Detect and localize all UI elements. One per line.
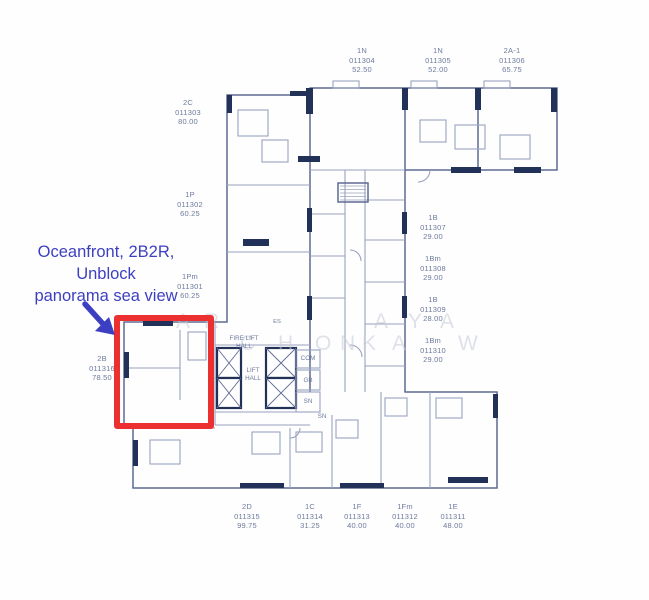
unit-id: 1N: [403, 46, 473, 56]
unit-area: 99.75: [212, 521, 282, 531]
unit-label-1bm-011310: 1Bm 011310 29.00: [398, 336, 468, 365]
unit-code: 011308: [398, 264, 468, 274]
floorplan-image: A R A Y A C H O N K A W 1N 011304 52.50 …: [0, 0, 649, 600]
unit-id: 2D: [212, 502, 282, 512]
unit-area: 52.00: [403, 65, 473, 75]
unit-code: 011303: [153, 108, 223, 118]
gb-label: GB: [298, 377, 318, 385]
fire-lift-shafts: [217, 348, 241, 408]
unit-area: 29.00: [398, 355, 468, 365]
unit-label-2c-011303: 2C 011303 80.00: [153, 98, 223, 127]
unit-code: 011305: [403, 56, 473, 66]
annotation-line2: Unblock: [16, 263, 196, 285]
unit-code: 011302: [155, 200, 225, 210]
unit-label-2a1-011306: 2A-1 011306 65.75: [477, 46, 547, 75]
unit-id: 2A-1: [477, 46, 547, 56]
com-label: COM: [296, 355, 320, 363]
unit-id: 1Bm: [398, 254, 468, 264]
lift-hall-line2: HALL: [240, 375, 266, 383]
fire-lift-hall-line1: FIRE LIFT: [222, 335, 266, 343]
unit-code: 011315: [212, 512, 282, 522]
unit-label-1bm-011308: 1Bm 011308 29.00: [398, 254, 468, 283]
unit-id: 1P: [155, 190, 225, 200]
unit-code: 011304: [327, 56, 397, 66]
unit-area: 29.00: [398, 273, 468, 283]
unit-label-1n-011305: 1N 011305 52.00: [403, 46, 473, 75]
unit-code: 011311: [418, 512, 488, 522]
unit-id: 2C: [153, 98, 223, 108]
unit-id: 1Bm: [398, 336, 468, 346]
unit-id: 1B: [398, 295, 468, 305]
unit-area: 60.25: [155, 209, 225, 219]
unit-area: 48.00: [418, 521, 488, 531]
annotation-text: Oceanfront, 2B2R, Unblock panorama sea v…: [16, 241, 196, 307]
arrow-icon: [78, 300, 126, 348]
unit-id: 1N: [327, 46, 397, 56]
sn-label-2: SN: [312, 413, 332, 421]
unit-code: 011306: [477, 56, 547, 66]
unit-code: 011309: [398, 305, 468, 315]
fire-lift-hall-label: FIRE LIFT HALL: [222, 335, 266, 350]
unit-area: 28.00: [398, 314, 468, 324]
lift-hall-line1: LIFT: [240, 367, 266, 375]
unit-label-1b-011307: 1B 011307 29.00: [398, 213, 468, 242]
unit-area: 65.75: [477, 65, 547, 75]
fire-lift-hall-line2: HALL: [222, 343, 266, 351]
highlight-rectangle: [114, 315, 214, 429]
annotation-line1: Oceanfront, 2B2R,: [16, 241, 196, 263]
unit-code: 011307: [398, 223, 468, 233]
lift-hall-label: LIFT HALL: [240, 367, 266, 382]
unit-area: 29.00: [398, 232, 468, 242]
sn-label: SN: [298, 398, 318, 406]
unit-label-1e-011311: 1E 011311 48.00: [418, 502, 488, 531]
unit-id: 1E: [418, 502, 488, 512]
es-label: ES: [268, 319, 286, 327]
unit-code: 011310: [398, 346, 468, 356]
unit-area: 52.50: [327, 65, 397, 75]
unit-id: 1B: [398, 213, 468, 223]
unit-label-1p-011302: 1P 011302 60.25: [155, 190, 225, 219]
unit-label-2d-011315: 2D 011315 99.75: [212, 502, 282, 531]
unit-label-1n-011304: 1N 011304 52.50: [327, 46, 397, 75]
lift-shafts: [266, 348, 296, 408]
unit-area: 80.00: [153, 117, 223, 127]
unit-label-1b-011309: 1B 011309 28.00: [398, 295, 468, 324]
